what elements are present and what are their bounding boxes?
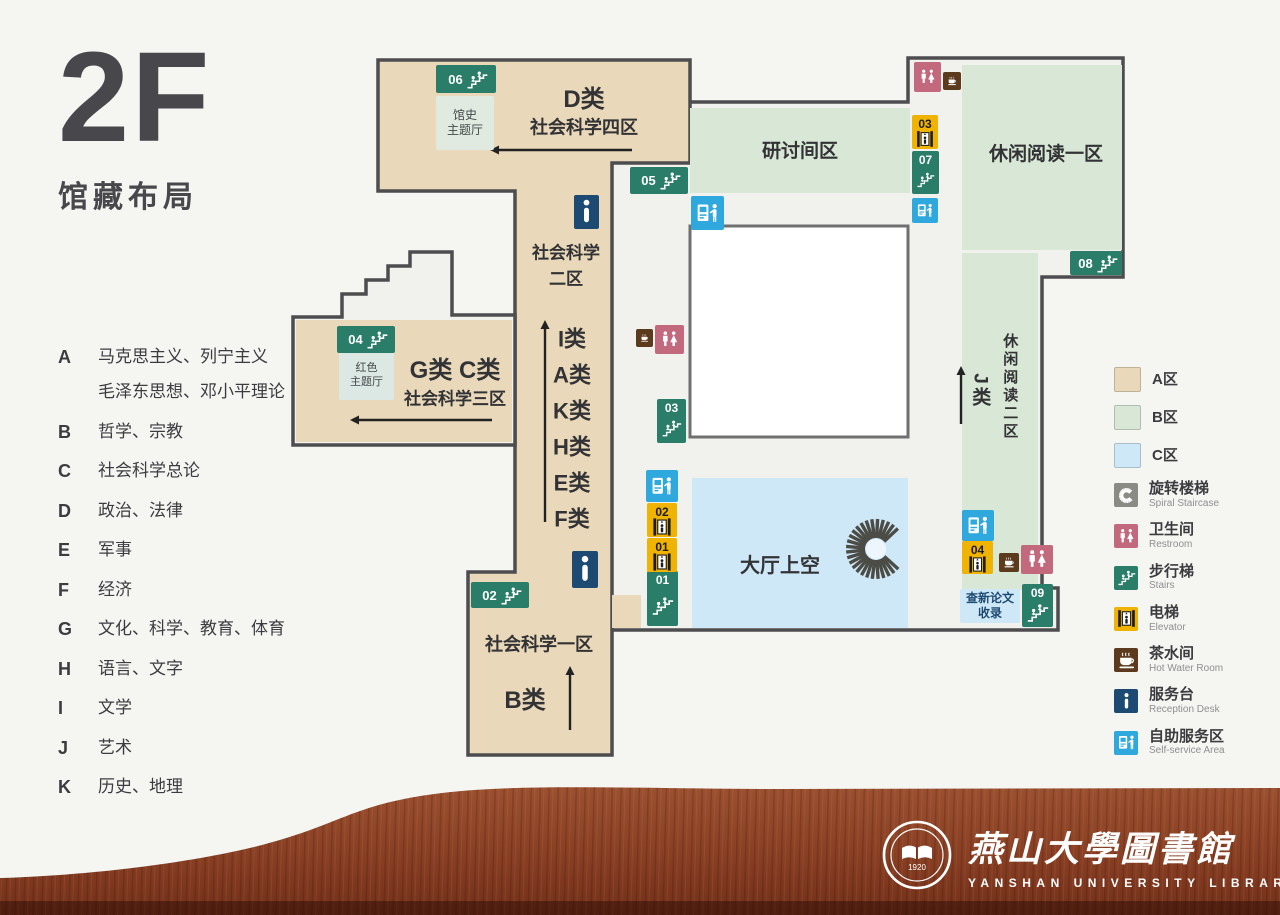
category-letter: D — [58, 498, 98, 524]
stairs-legend-icon — [1114, 566, 1138, 590]
area-label: A类 — [553, 359, 591, 392]
stairs-badge-06: 06 — [436, 65, 496, 93]
legend-item-row: 自助服务区 Self-service Area — [1114, 729, 1280, 757]
floor-subtitle: 馆藏布局 — [58, 172, 211, 216]
legend-item-row: 茶水间 Hot Water Room — [1114, 646, 1280, 674]
hotwater-glyph-icon — [1003, 556, 1015, 569]
stairs-badge-02: 02 — [471, 582, 529, 608]
stairs-badge-05: 05 — [630, 167, 688, 194]
category-text: 文化、科学、教育、体育 — [98, 616, 285, 642]
zone-color-swatch — [1114, 367, 1141, 392]
category-text: 社会科学总论 — [98, 458, 200, 484]
elevator-badge-04: 04 — [962, 541, 993, 574]
stairs-glyph-icon — [651, 586, 674, 625]
selfservice-icon — [912, 198, 938, 223]
category-letter: I — [58, 695, 98, 721]
badge-number: 08 — [1078, 257, 1092, 270]
category-letter: G — [58, 616, 98, 642]
legend-swatch-row: A区 — [1114, 367, 1280, 392]
legend-item-row: 电梯 Elevator — [1114, 605, 1280, 633]
restroom-legend-icon — [1114, 524, 1138, 548]
reception-glyph-icon — [578, 198, 595, 226]
category-text: 军事 — [98, 537, 132, 563]
area-label: E类 — [554, 467, 591, 500]
elevator-legend-icon — [1114, 607, 1138, 631]
category-letter: C — [58, 458, 98, 484]
category-letter: A — [58, 344, 98, 405]
area-label: K类 — [553, 395, 591, 428]
floor-header: 2F 馆藏布局 — [58, 34, 211, 216]
category-row: C 社会科学总论 — [58, 458, 328, 484]
hotwater-legend-icon — [1114, 648, 1138, 672]
legend-label-en: Elevator — [1149, 623, 1186, 634]
stairs-glyph-icon — [1026, 599, 1049, 626]
map-legend: A区 B区 C区 旋转楼梯 Spiral Staircase 卫生间 Restr… — [1114, 367, 1280, 770]
category-letter: B — [58, 419, 98, 445]
room-label-box: 红色 主题厅 — [339, 352, 394, 400]
selfservice-glyph-icon — [916, 201, 934, 220]
hotwater-icon — [999, 553, 1019, 572]
hotwater-glyph-icon — [640, 332, 649, 344]
legend-label: C区 — [1152, 448, 1178, 464]
category-text: 历史、地理 — [98, 774, 183, 800]
category-text: 哲学、宗教 — [98, 419, 183, 445]
category-letter: K — [58, 774, 98, 800]
restroom-glyph-icon — [1025, 548, 1049, 571]
category-row: E 军事 — [58, 537, 328, 563]
category-text: 艺术 — [98, 735, 132, 761]
category-text: 政治、法律 — [98, 498, 183, 524]
library-logo: 1920 燕山大學圖書館 YANSHAN UNIVERSITY LIBRARY — [880, 818, 1280, 892]
restroom-glyph-icon — [918, 65, 937, 89]
legend-label-en: Restroom — [1149, 540, 1194, 551]
room-label-box: 馆史 主题厅 — [436, 96, 494, 150]
badge-number: 01 — [656, 574, 669, 586]
selfservice-glyph-icon — [695, 199, 720, 227]
area-label: 社会科学四区 — [530, 115, 638, 142]
legend-item-row: 步行梯 Stairs — [1114, 564, 1280, 592]
legend-label-zh: 服务台 — [1149, 687, 1220, 703]
elevator-badge-02: 02 — [647, 503, 677, 537]
badge-number: 07 — [919, 154, 932, 166]
legend-label: A区 — [1152, 372, 1178, 388]
area-label: 社会科学 二区 — [532, 241, 600, 292]
category-row: F 经济 — [58, 577, 328, 603]
area-label: 社会科学一区 — [485, 632, 593, 659]
stairs-glyph-icon — [465, 70, 489, 89]
area-label: D类 — [563, 82, 604, 118]
category-row: A 马克思主义、列宁主义毛泽东思想、邓小平理论 — [58, 344, 328, 405]
stairs-glyph-icon — [658, 171, 682, 190]
elevator-badge-03: 03 — [912, 115, 938, 149]
legend-label-zh: 茶水间 — [1149, 646, 1223, 662]
restroom-icon — [914, 62, 941, 92]
category-text: 经济 — [98, 577, 132, 603]
area-label: I类 — [558, 323, 586, 356]
badge-number: 09 — [1031, 587, 1044, 599]
legend-label-en: Hot Water Room — [1149, 664, 1223, 675]
badge-number: 02 — [655, 506, 668, 518]
floorplan-poster: 2F 馆藏布局 A 马克思主义、列宁主义毛泽东思想、邓小平理论B 哲学、宗教C … — [0, 0, 1280, 915]
badge-number: 03 — [665, 402, 678, 414]
stairs-glyph-icon — [365, 330, 389, 349]
legend-label-zh: 电梯 — [1149, 605, 1186, 621]
legend-label-zh: 旋转楼梯 — [1149, 481, 1219, 497]
zone-color-swatch — [1114, 405, 1141, 430]
reception-icon — [572, 551, 598, 588]
spiral-legend-icon — [1114, 483, 1138, 507]
category-row: D 政治、法律 — [58, 498, 328, 524]
elevator-badge-01: 01 — [647, 538, 677, 572]
stairs-badge-07: 07 — [912, 151, 939, 194]
reception-glyph-icon — [576, 554, 594, 585]
selfservice-icon — [646, 470, 678, 502]
legend-swatch-row: C区 — [1114, 443, 1280, 468]
elevator-glyph-icon — [916, 130, 934, 148]
stairs-badge-09: 09 — [1022, 584, 1053, 627]
badge-number: 03 — [918, 118, 931, 130]
stairs-badge-01: 01 — [647, 571, 678, 626]
stairs-glyph-icon — [661, 414, 682, 442]
badge-number: 04 — [348, 333, 362, 346]
legend-label-en: Self-service Area — [1149, 746, 1225, 757]
legend-label: B区 — [1152, 410, 1178, 426]
legend-label-en: Spiral Staircase — [1149, 499, 1219, 510]
restroom-icon — [1021, 545, 1053, 574]
room-label-box: 查新论文 收录 — [960, 589, 1020, 623]
badge-number: 04 — [971, 544, 984, 556]
badge-number: 06 — [448, 73, 462, 86]
selfservice-legend-icon — [1114, 731, 1138, 755]
stairs-glyph-icon — [499, 586, 523, 605]
library-name-zh: 燕山大學圖書館 — [968, 821, 1280, 872]
area-label: G类 C类 — [410, 353, 501, 389]
category-row: B 哲学、宗教 — [58, 419, 328, 445]
stairs-badge-04: 04 — [337, 326, 395, 353]
reception-legend-icon — [1114, 689, 1138, 713]
category-letter: H — [58, 656, 98, 682]
stairs-badge-03: 03 — [657, 399, 686, 443]
stairs-glyph-icon — [916, 166, 935, 193]
legend-label-zh: 卫生间 — [1149, 522, 1194, 538]
stairs-badge-08: 08 — [1070, 251, 1122, 275]
seal-year: 1920 — [908, 863, 926, 872]
legend-item-row: 旋转楼梯 Spiral Staircase — [1114, 481, 1280, 509]
library-name-en: YANSHAN UNIVERSITY LIBRARY — [968, 876, 1280, 890]
badge-number: 05 — [641, 174, 655, 187]
stairs-glyph-icon — [1095, 254, 1119, 273]
category-row: I 文学 — [58, 695, 328, 721]
hotwater-icon — [943, 72, 961, 90]
legend-swatch-row: B区 — [1114, 405, 1280, 430]
area-label: B类 — [504, 683, 545, 719]
elevator-glyph-icon — [966, 556, 989, 573]
legend-label-en: Reception Desk — [1149, 705, 1220, 716]
area-label: J类 — [965, 373, 994, 409]
selfservice-glyph-icon — [966, 513, 990, 538]
area-label: 社会科学三区 — [404, 386, 506, 412]
legend-label-zh: 步行梯 — [1149, 564, 1194, 580]
area-label: H类 — [553, 431, 591, 464]
restroom-glyph-icon — [659, 328, 680, 351]
category-text: 语言、文字 — [98, 656, 183, 682]
hotwater-icon — [636, 329, 653, 347]
area-label: 休闲阅读二区 — [998, 333, 1021, 441]
area-label: 研讨间区 — [762, 138, 838, 167]
category-letter: J — [58, 735, 98, 761]
badge-number: 01 — [655, 541, 668, 553]
hotwater-glyph-icon — [947, 75, 957, 87]
category-legend-list: A 马克思主义、列宁主义毛泽东思想、邓小平理论B 哲学、宗教C 社会科学总论D … — [58, 344, 328, 814]
legend-item-row: 卫生间 Restroom — [1114, 522, 1280, 550]
selfservice-icon — [691, 196, 724, 230]
category-letter: F — [58, 577, 98, 603]
elevator-glyph-icon — [651, 518, 673, 536]
category-row: G 文化、科学、教育、体育 — [58, 616, 328, 642]
category-row: J 艺术 — [58, 735, 328, 761]
badge-number: 02 — [482, 589, 496, 602]
category-row: K 历史、地理 — [58, 774, 328, 800]
selfservice-icon — [962, 510, 994, 541]
area-label: 大厅上空 — [740, 551, 820, 581]
category-letter: E — [58, 537, 98, 563]
area-label: 休闲阅读一区 — [989, 141, 1103, 170]
elevator-glyph-icon — [651, 553, 673, 571]
area-label: F类 — [554, 503, 589, 536]
floor-number: 2F — [58, 34, 211, 162]
legend-item-row: 服务台 Reception Desk — [1114, 687, 1280, 715]
selfservice-glyph-icon — [650, 473, 674, 499]
library-seal-icon: 1920 — [880, 818, 954, 892]
legend-label-en: Stairs — [1149, 581, 1194, 592]
reception-icon — [574, 195, 599, 229]
category-text: 文学 — [98, 695, 132, 721]
category-text: 马克思主义、列宁主义毛泽东思想、邓小平理论 — [98, 344, 285, 405]
legend-label-zh: 自助服务区 — [1149, 729, 1225, 745]
zone-color-swatch — [1114, 443, 1141, 468]
category-row: H 语言、文字 — [58, 656, 328, 682]
restroom-icon — [655, 325, 684, 354]
